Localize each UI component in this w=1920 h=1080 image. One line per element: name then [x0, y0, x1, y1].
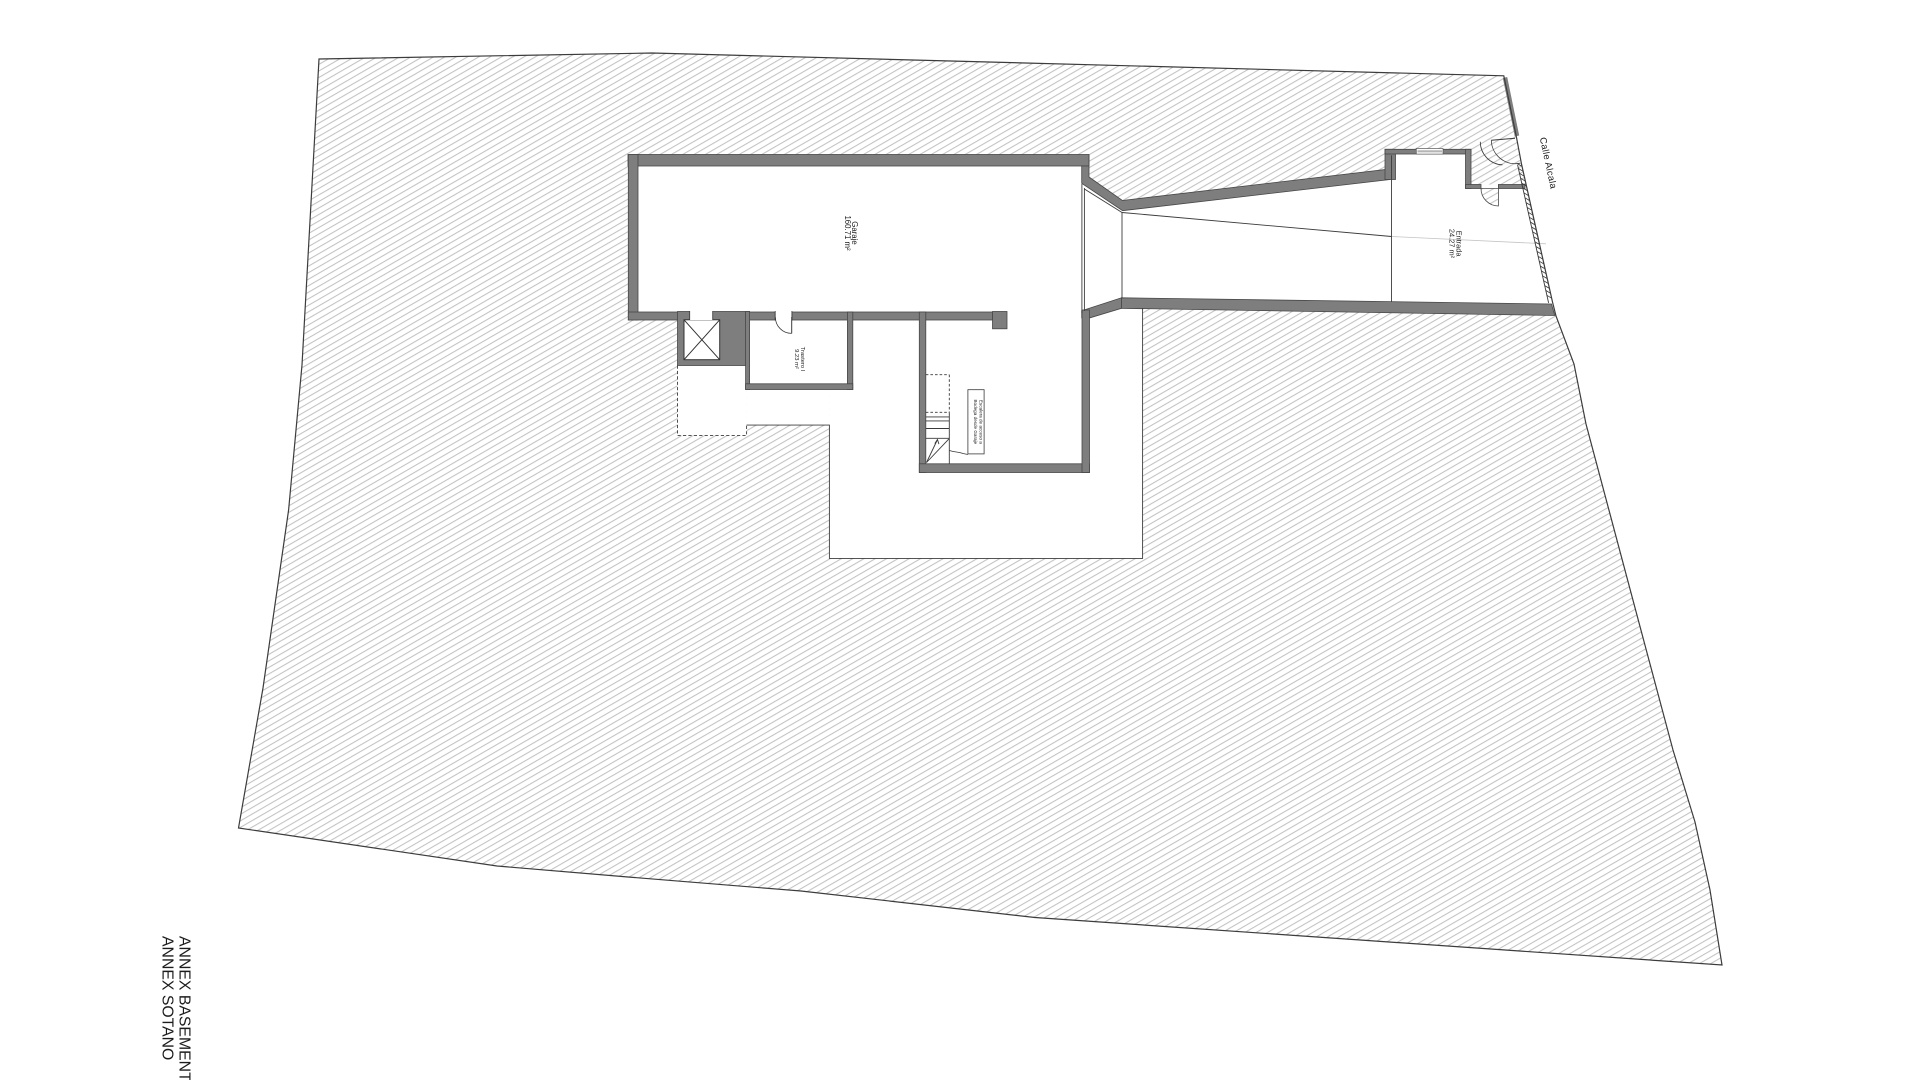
svg-text:Calle Alcala: Calle Alcala [1538, 136, 1560, 190]
svg-text:Bodega desde Garaje: Bodega desde Garaje [973, 399, 978, 444]
svg-text:ANNEX BASEMENT: ANNEX BASEMENT [176, 936, 193, 1080]
svg-text:Escalera de acceso a: Escalera de acceso a [979, 400, 984, 444]
svg-text:9.23 m²: 9.23 m² [793, 349, 799, 369]
svg-text:160.71 m²: 160.71 m² [843, 215, 852, 251]
svg-text:24.27 m²: 24.27 m² [1448, 229, 1457, 259]
svg-text:ANNEX SOTANO: ANNEX SOTANO [159, 936, 176, 1060]
svg-text:Trastero I: Trastero I [799, 347, 805, 372]
